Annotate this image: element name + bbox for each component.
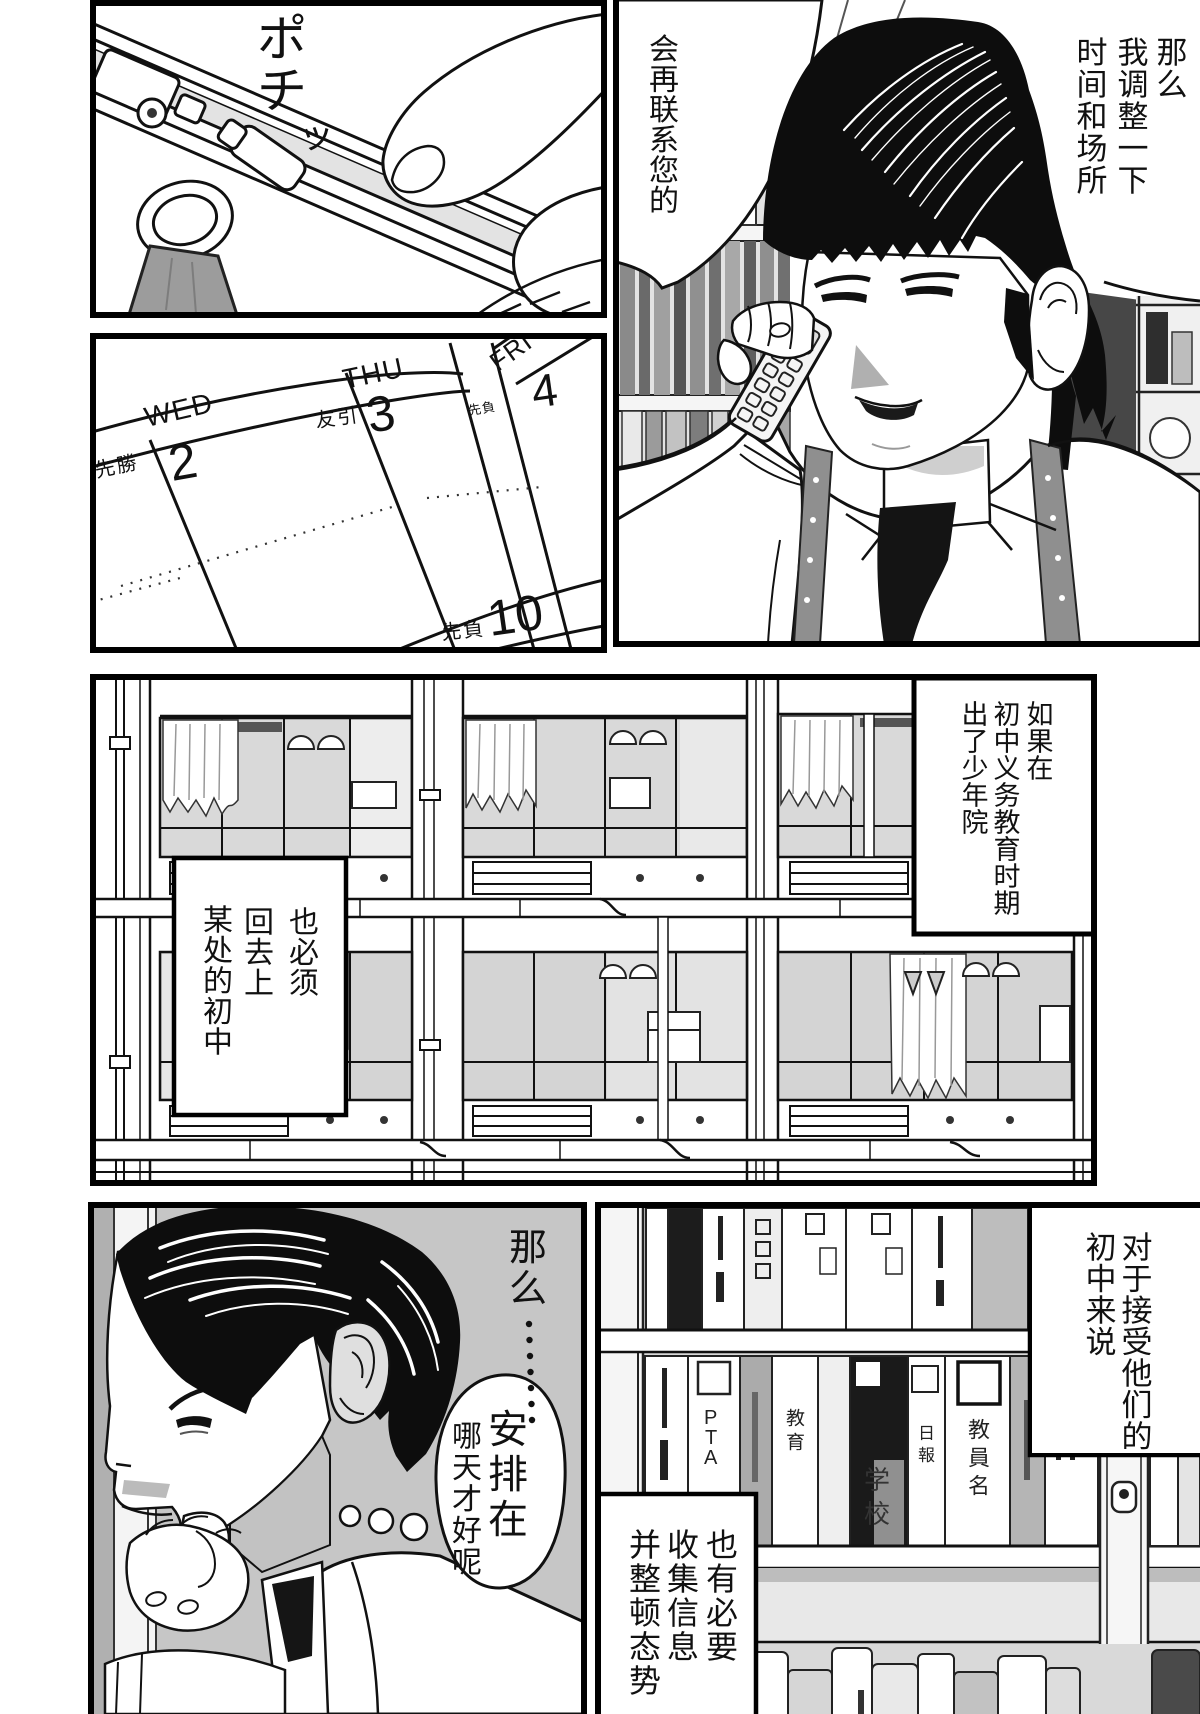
svg-text:T: T xyxy=(705,1427,717,1449)
svg-text:P: P xyxy=(704,1407,717,1429)
svg-text:10: 10 xyxy=(484,584,547,647)
svg-text:A: A xyxy=(704,1447,718,1469)
